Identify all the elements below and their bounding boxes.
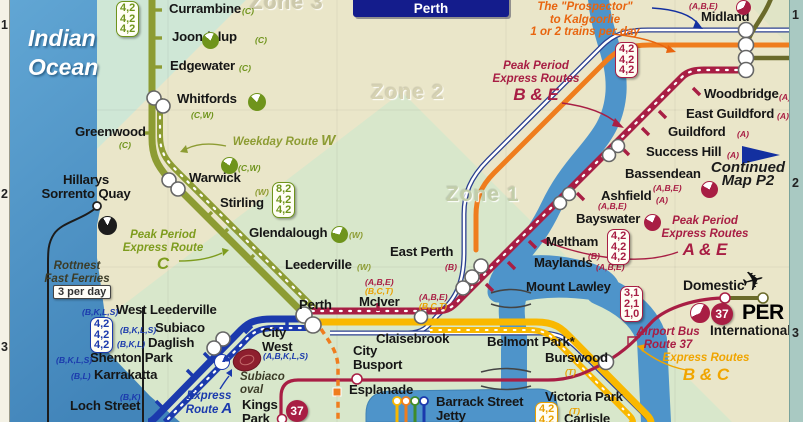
- annotation-line: Map P2: [711, 175, 785, 188]
- route-37-badge-airport: 37: [711, 303, 733, 325]
- route-letters-tag: (C): [119, 140, 131, 150]
- annotation-line: Subiaco: [240, 371, 285, 384]
- station-label-line: Glendalough: [249, 226, 327, 240]
- limited-service-pie-icon: [248, 93, 266, 111]
- limited-service-pie-icon: [644, 214, 661, 231]
- station-label-line: Esplanade: [349, 383, 413, 397]
- route-letters-tag: (B): [588, 251, 600, 261]
- station-label-line: Woodbridge: [704, 87, 779, 101]
- route-letters-tag: (A): [656, 195, 668, 205]
- station-label: Whitfords: [177, 92, 237, 106]
- station-label-line: Busport: [353, 358, 402, 372]
- route-letters-tag: (W): [357, 262, 371, 272]
- route-37-badge-kings-park: 37: [286, 400, 308, 422]
- frequency-value: 4,2: [276, 205, 291, 216]
- frequency-value: 4,2: [120, 3, 135, 14]
- station-label-line: City: [262, 326, 292, 340]
- frequency-value: 4,2: [94, 319, 109, 330]
- station-label: Bassendean: [625, 167, 701, 181]
- station-label: Meltham: [546, 235, 598, 249]
- frequency-value: 4,2: [611, 231, 626, 242]
- annotation-line: Route 37: [636, 339, 699, 352]
- station-label: Karrakatta: [94, 368, 157, 382]
- annotation-text: Fast Ferries: [44, 273, 109, 285]
- annotation-line: Express Routes: [663, 352, 750, 365]
- route-letters-tag: (B,K,L,S): [120, 325, 156, 335]
- station-label: Woodbridge: [704, 87, 779, 101]
- route-letters-tag: (B,K): [120, 392, 141, 402]
- route-letters-tag: (T): [569, 406, 580, 416]
- station-label-line: Barrack Street: [436, 395, 523, 409]
- limited-service-pie-icon: [214, 354, 230, 370]
- station-label: Subiaco: [155, 321, 205, 335]
- station-label: Glendalough: [249, 226, 327, 240]
- station-label-line: East Guildford: [686, 107, 774, 121]
- annotation-line: Rottnest: [44, 260, 109, 273]
- station-label: Currambine: [169, 2, 241, 16]
- frequency-value: 4,2: [94, 340, 109, 351]
- annotation: Peak PeriodExpress RouteC: [123, 229, 204, 273]
- annotation-text: Express Routes: [663, 352, 750, 364]
- station-label-line: Sorrento Quay: [40, 187, 132, 201]
- zone1-label: Zone 1: [446, 183, 520, 207]
- left-map-border: [0, 0, 10, 422]
- annotation-line: C: [123, 254, 204, 273]
- annotation-line: Peak Period: [493, 60, 580, 73]
- limited-service-pie-icon: [736, 0, 751, 15]
- station-label-line: Karrakatta: [94, 368, 157, 382]
- annotation-text: Airport Bus: [636, 326, 699, 338]
- route-letters-tag: (B,C,T): [365, 286, 393, 296]
- station-label-line: Whitfords: [177, 92, 237, 106]
- airport-domestic-label: Domestic: [683, 278, 744, 292]
- annotation: Subiacooval: [240, 371, 285, 396]
- esplanade-marker: [333, 388, 341, 396]
- station-label-line: Stirling: [220, 196, 264, 210]
- train-frequency-box: 4,24,24,2: [90, 317, 113, 353]
- annotation-text: Peak Period: [130, 229, 196, 241]
- station-label: Edgewater: [170, 59, 235, 73]
- annotation-text: B & C: [683, 365, 729, 384]
- frequency-value: 4,2: [619, 65, 634, 76]
- right-map-border: [789, 0, 803, 422]
- station-label-line: Edgewater: [170, 59, 235, 73]
- limited-service-pie-icon: [331, 226, 348, 243]
- annotation-text: Weekday Route: [233, 136, 318, 148]
- annotation-text: C: [157, 254, 169, 273]
- route-letters-tag: (A): [777, 111, 789, 121]
- annotation-text: Subiaco: [240, 371, 285, 383]
- station-label: HillarysSorrento Quay: [40, 173, 132, 201]
- station-label-line: City: [353, 344, 402, 358]
- annotation: Airport BusRoute 37: [636, 326, 699, 351]
- annotation-text: Peak Period: [503, 60, 569, 72]
- grid-ref-right-2: 2: [792, 176, 799, 190]
- annotation-text: B & E: [513, 85, 558, 104]
- annotation-text: Rottnest: [54, 260, 101, 272]
- route-letters-tag: (B,L): [71, 371, 91, 381]
- annotation-line: The "Prospector": [530, 1, 639, 14]
- limited-service-pie-icon: [221, 157, 238, 174]
- route-letters-tag: (C,W): [191, 110, 213, 120]
- annotation-line: Weekday RouteW: [233, 135, 336, 149]
- train-frequency-box: 3,12,11,0: [620, 286, 643, 322]
- station-label-line: Perth: [299, 298, 332, 312]
- annotation-line: A & E: [662, 240, 749, 259]
- grid-ref-left-1: 1: [1, 18, 8, 32]
- route-letters-tag: (T): [565, 367, 576, 377]
- route-letters-tag: (A,B,E): [598, 201, 627, 211]
- station-label: KingsPark: [242, 398, 278, 422]
- station-label: Burswood: [545, 351, 608, 365]
- train-frequency-box: 4,24,24,2: [615, 42, 638, 78]
- station-label: Bayswater: [576, 212, 640, 226]
- station-label-line: Bassendean: [625, 167, 701, 181]
- annotation-line: RouteA: [186, 403, 232, 417]
- station-label-line: Shenton Park: [90, 351, 173, 365]
- train-frequency-box: 8,24,24,2: [272, 182, 295, 218]
- annotation: Weekday RouteW: [233, 135, 336, 149]
- station-label: West Leederville: [116, 303, 217, 317]
- ocean-label: Indian Ocean: [28, 24, 98, 82]
- annotation-line: Express Route: [123, 242, 204, 255]
- station-label: Barrack StreetJetty: [436, 395, 523, 422]
- annotation-text: oval: [240, 384, 263, 396]
- route-letters-tag: (B,C,T): [419, 301, 447, 311]
- annotation: ExpressRouteA: [186, 390, 232, 416]
- station-label: East Guildford: [686, 107, 774, 121]
- route-letters-tag: (A): [737, 129, 749, 139]
- station-label: Success Hill: [646, 145, 721, 159]
- station-label-line: Park: [242, 412, 278, 422]
- route-letters-tag: (A,B,E): [653, 183, 682, 193]
- limited-service-pie-icon: [690, 303, 710, 323]
- station-label-line: Currambine: [169, 2, 241, 16]
- station-label: Maylands: [534, 256, 593, 270]
- route-letters-tag: (B,K,L,S): [82, 307, 118, 317]
- annotation: RottnestFast Ferries: [44, 260, 109, 285]
- ferry-frequency-badge: 3 per day: [53, 285, 111, 299]
- frequency-value: 8,2: [276, 184, 291, 195]
- annotation-text: Express Routes: [493, 73, 580, 85]
- route-letters-tag: (B,K,L,S): [56, 355, 92, 365]
- route-letters-tag: (A,B,E): [689, 1, 718, 11]
- annotation: The "Prospector"to Kalgoorlie1 or 2 trai…: [530, 1, 639, 39]
- station-label: Esplanade: [349, 383, 413, 397]
- frequency-value: 4,2: [120, 24, 135, 35]
- annotation-text: The "Prospector": [537, 1, 632, 13]
- annotation-line: Express Routes: [662, 228, 749, 241]
- annotation-text: Map P2: [722, 172, 775, 189]
- zone3-label: Zone 3: [250, 0, 324, 15]
- route-letters-tag: (B): [445, 262, 457, 272]
- annotation: Peak PeriodExpress RoutesB & E: [493, 60, 580, 104]
- route-letters-tag: (B,K,L): [117, 339, 145, 349]
- annotation-line: B & E: [493, 85, 580, 104]
- annotation-text: Express Route: [123, 242, 204, 254]
- frequency-value: 4,2: [539, 404, 554, 415]
- ocean-label-line2: Ocean: [28, 53, 98, 82]
- annotation: ContinuedMap P2: [711, 162, 785, 187]
- annotation-line: Airport Bus: [636, 326, 699, 339]
- frequency-value: 1,0: [624, 309, 639, 320]
- station-label-line: McIver: [359, 295, 400, 309]
- station-label: McIver: [359, 295, 400, 309]
- annotation-route-letter: W: [321, 132, 335, 149]
- station-label-line: Mount Lawley: [526, 280, 611, 294]
- station-label-line: Victoria Park: [545, 390, 623, 404]
- route-letters-tag: (C): [255, 35, 267, 45]
- station-label-line: Hillarys: [40, 173, 132, 187]
- station-label-line: Greenwood: [75, 125, 146, 139]
- station-label-line: Jetty: [436, 409, 523, 422]
- station-label-line: Maylands: [534, 256, 593, 270]
- station-label-line: West Leederville: [116, 303, 217, 317]
- annotation-line: Fast Ferries: [44, 273, 109, 286]
- annotation-line: Peak Period: [123, 229, 204, 242]
- annotation-text: Peak Period: [672, 215, 738, 227]
- grid-ref-left-2: 2: [1, 187, 8, 201]
- station-label: Greenwood: [75, 125, 146, 139]
- train-frequency-box: 4,24,24,2: [116, 1, 139, 37]
- grid-ref-right-1: 1: [792, 8, 799, 22]
- station-label: Stirling: [220, 196, 264, 210]
- limited-service-pie-icon: [98, 216, 117, 235]
- station-label: Daglish: [148, 336, 194, 350]
- route-letters-tag: (C,W): [238, 163, 260, 173]
- annotation-text: to Kalgoorlie: [550, 14, 620, 26]
- station-label: CityWest: [262, 326, 292, 354]
- station-label: Leederville: [285, 258, 352, 272]
- annotation-line: Express Routes: [493, 73, 580, 86]
- frequency-value: 3,1: [624, 288, 639, 299]
- annotation-text: 1 or 2 trains per day: [530, 26, 639, 38]
- station-label-line: Leederville: [285, 258, 352, 272]
- ocean-label-line1: Indian: [28, 24, 98, 53]
- annotation-line: to Kalgoorlie: [530, 14, 639, 27]
- limited-service-pie-icon: [202, 32, 219, 49]
- station-label-line: Daglish: [148, 336, 194, 350]
- station-label: Victoria Park: [545, 390, 623, 404]
- annotation-text: Route: [186, 404, 219, 416]
- annotation-line: B & C: [663, 365, 750, 384]
- route-letters-tag: (C): [239, 63, 251, 73]
- station-label-line: Success Hill: [646, 145, 721, 159]
- station-label-line: Belmont Park*: [487, 335, 575, 349]
- route-letters-tag: (A,B,K,L,S): [263, 351, 308, 361]
- station-label-line: Burswood: [545, 351, 608, 365]
- station-label: East Perth: [390, 245, 453, 259]
- annotation-line: 1 or 2 trains per day: [530, 26, 639, 39]
- station-label: Guildford: [668, 125, 726, 139]
- annotation-text: Route 37: [644, 339, 693, 351]
- train-frequency-box: 4,24,2: [535, 402, 558, 422]
- train-frequency-box: 4,24,24,2: [607, 229, 630, 265]
- airport-code-label: PER: [742, 301, 784, 325]
- station-label-line: Meltham: [546, 235, 598, 249]
- station-label: CityBusport: [353, 344, 402, 372]
- airport-international-label: International: [710, 323, 791, 338]
- annotation-text: A & E: [683, 240, 728, 259]
- station-label-line: Subiaco: [155, 321, 205, 335]
- frequency-value: 4,2: [619, 44, 634, 55]
- map-title: Perth: [353, 0, 509, 17]
- station-label-line: East Perth: [390, 245, 453, 259]
- route-letters-tag: (W): [349, 230, 363, 240]
- grid-ref-right-3: 3: [792, 326, 799, 340]
- annotation-text: Express Routes: [662, 228, 749, 240]
- annotation-line: Peak Period: [662, 215, 749, 228]
- annotation: Express RoutesB & C: [663, 352, 750, 384]
- station-label-line: Guildford: [668, 125, 726, 139]
- frequency-value: 4,2: [611, 252, 626, 263]
- station-label-line: Bayswater: [576, 212, 640, 226]
- station-label: Mount Lawley: [526, 280, 611, 294]
- station-label-line: Kings: [242, 398, 278, 412]
- station-label: Shenton Park: [90, 351, 173, 365]
- annotation-route-letter: A: [221, 400, 232, 417]
- perth-rail-map: Indian Ocean Zone 3 Zone 2 Zone 1 ✈ PER …: [0, 0, 803, 422]
- frequency-value: 4,2: [539, 415, 554, 422]
- station-label: Perth: [299, 298, 332, 312]
- annotation-line: oval: [240, 384, 285, 397]
- route-letters-tag: (C): [242, 6, 254, 16]
- annotation: Peak PeriodExpress RoutesA & E: [662, 215, 749, 259]
- zone2-label: Zone 2: [371, 81, 445, 105]
- route-letters-tag: (W): [255, 187, 269, 197]
- grid-ref-left-3: 3: [1, 340, 8, 354]
- station-label: Belmont Park*: [487, 335, 575, 349]
